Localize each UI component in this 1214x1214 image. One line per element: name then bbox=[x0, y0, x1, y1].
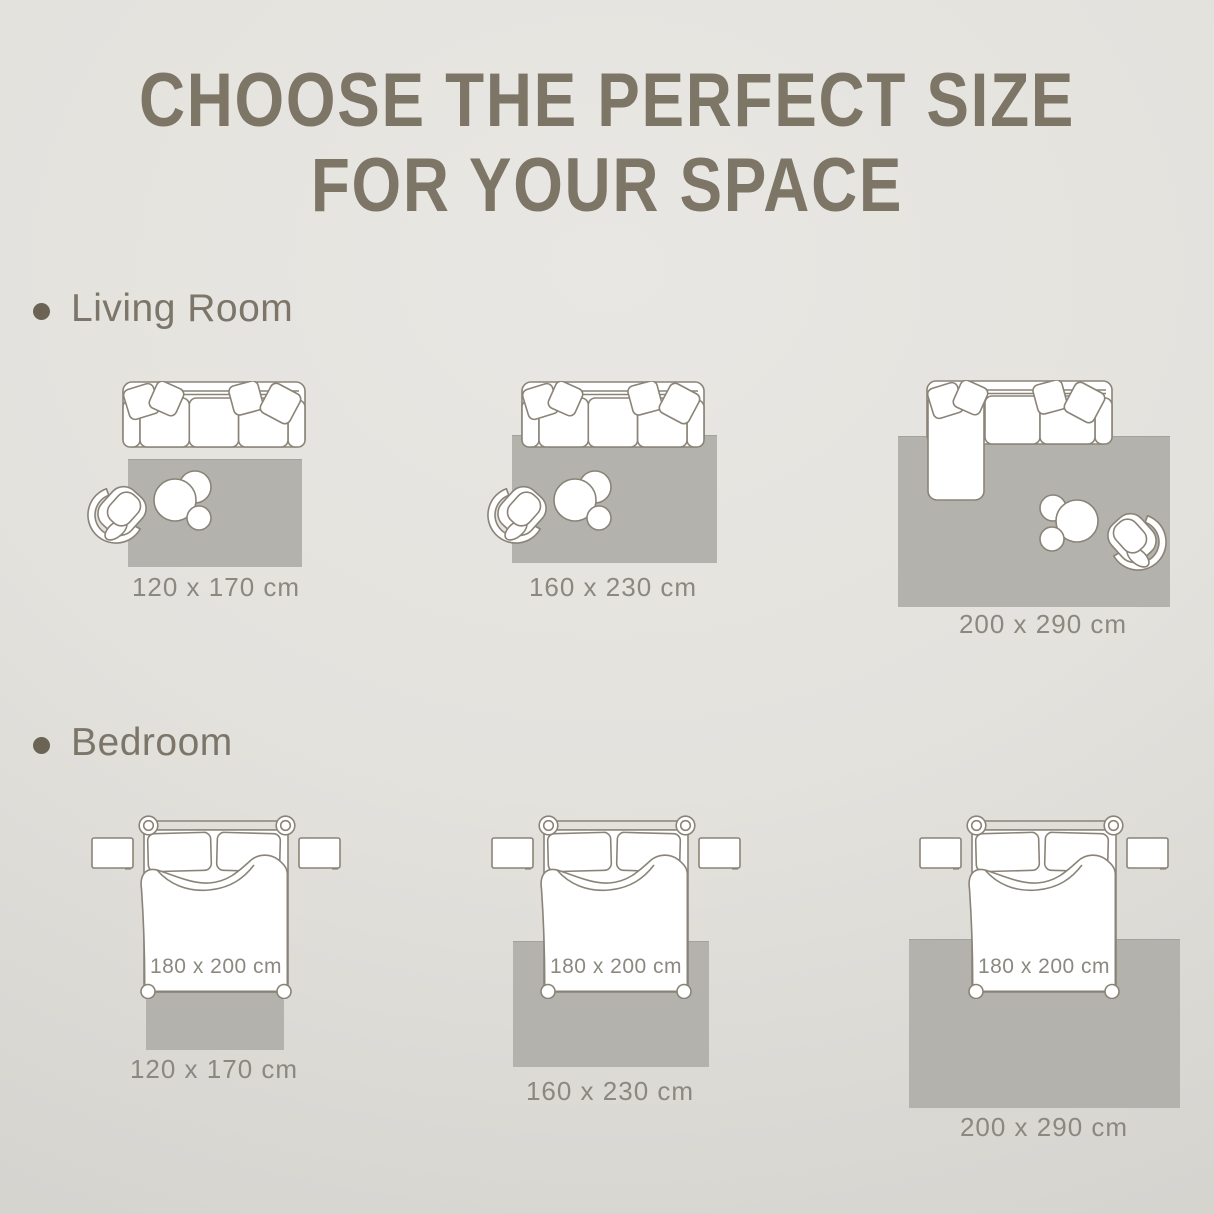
bed-with-nightstands: 180 x 200 cm bbox=[491, 815, 741, 999]
coffee-tables-icon bbox=[552, 468, 614, 532]
rug-size-label: 120 x 170 cm bbox=[84, 1054, 344, 1085]
rug-size-label: 200 x 290 cm bbox=[914, 1112, 1174, 1143]
page-title-line-2: FOR YOUR SPACE bbox=[97, 143, 1117, 228]
rug-size-label: 160 x 230 cm bbox=[480, 1076, 740, 1107]
armchair-icon bbox=[86, 477, 154, 547]
coffee-tables-icon bbox=[1038, 490, 1102, 554]
sectional-sofa-top-view-icon bbox=[926, 380, 1114, 502]
section-heading-living-room: Living Room bbox=[33, 287, 293, 331]
bed-size-label: 180 x 200 cm bbox=[544, 955, 688, 979]
bed-size-label: 180 x 200 cm bbox=[144, 955, 288, 979]
page-title: CHOOSE THE PERFECT SIZE FOR YOUR SPACE bbox=[0, 58, 1214, 228]
bullet-icon bbox=[33, 303, 50, 320]
sofa-top-view-icon bbox=[521, 381, 705, 448]
bed-size-label: 180 x 200 cm bbox=[972, 955, 1116, 979]
rug-size-label: 160 x 230 cm bbox=[483, 572, 743, 603]
bed-with-nightstands: 180 x 200 cm bbox=[91, 815, 341, 999]
armchair-icon bbox=[486, 477, 554, 547]
bullet-icon bbox=[33, 737, 50, 754]
rug-size-label: 200 x 290 cm bbox=[913, 609, 1173, 640]
page-title-line-1: CHOOSE THE PERFECT SIZE bbox=[97, 58, 1117, 143]
bed-with-nightstands: 180 x 200 cm bbox=[919, 815, 1169, 999]
rug-size-label: 120 x 170 cm bbox=[86, 572, 346, 603]
bedroom-rug-120x170 bbox=[146, 992, 284, 1050]
section-label-bedroom: Bedroom bbox=[71, 721, 233, 765]
armchair-icon bbox=[1100, 504, 1168, 574]
sofa-top-view-icon bbox=[122, 381, 306, 448]
section-heading-bedroom: Bedroom bbox=[33, 721, 233, 765]
section-label-living-room: Living Room bbox=[71, 287, 293, 331]
rug-size-guide-infographic: CHOOSE THE PERFECT SIZE FOR YOUR SPACE L… bbox=[0, 0, 1214, 1214]
coffee-tables-icon bbox=[152, 468, 214, 532]
